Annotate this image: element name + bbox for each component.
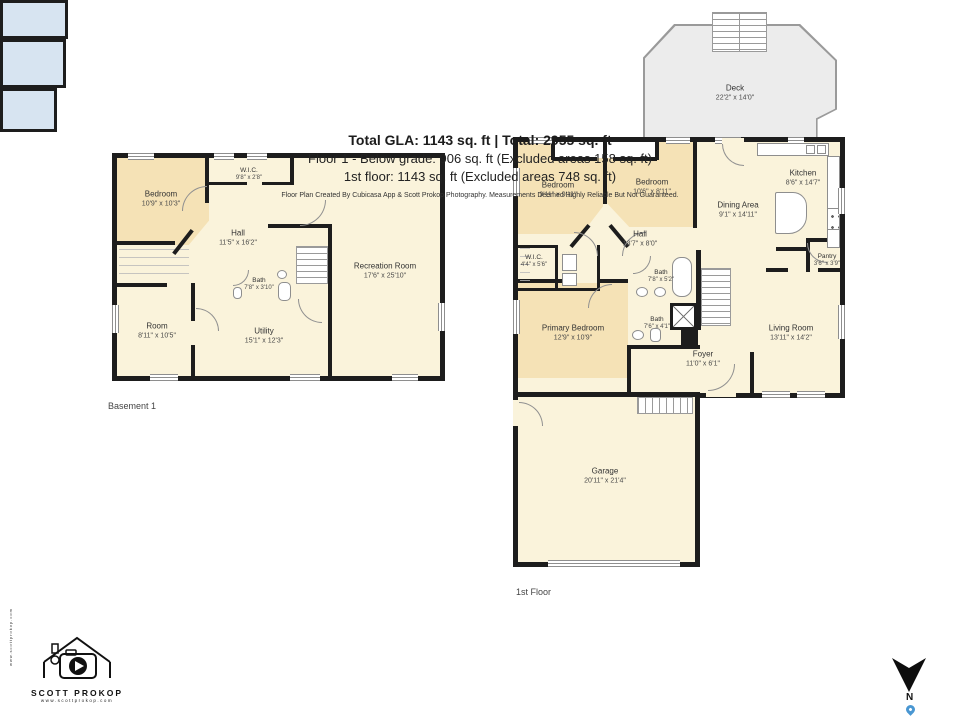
- garage-door-opening: [548, 560, 680, 567]
- logo-website-text: www.scottprokop.com: [22, 698, 132, 703]
- room-dims: 3'6" x 3'9": [814, 261, 840, 269]
- room-label-garage: Garage 20'11" x 21'4": [584, 466, 626, 485]
- ff-wall: [555, 245, 558, 291]
- window: [438, 303, 445, 331]
- garage-stairs: [637, 397, 693, 414]
- window: [112, 305, 119, 333]
- room-name: Foyer: [686, 349, 720, 359]
- basement-wall: [328, 224, 332, 377]
- window: [290, 374, 320, 381]
- sink-fixture: [654, 287, 666, 297]
- room-name: Garage: [584, 466, 626, 476]
- room-label-deck: Deck 22'2" x 14'0": [716, 83, 754, 102]
- room-dims: 17'6" x 25'10": [354, 272, 416, 281]
- room-name: Utility: [245, 326, 283, 336]
- basement-wall: [117, 283, 167, 287]
- ff-wall: [518, 288, 558, 291]
- basement-wall: [191, 283, 195, 321]
- photographer-logo: SCOTT PROKOP www.scottprokop.com www.sco…: [22, 630, 132, 703]
- window: [762, 391, 790, 398]
- room-dims: 13'11" x 14'2": [769, 334, 813, 343]
- room-label-basement-recreation: Recreation Room 17'6" x 25'10": [354, 261, 416, 280]
- room-label-ff-dining: Dining Area 9'1" x 14'11": [717, 200, 758, 219]
- ff-wall: [600, 279, 628, 283]
- room-dims: 20'11" x 21'4": [584, 477, 626, 486]
- ff-bath-upper-room: [0, 39, 66, 88]
- logo-name-text: SCOTT PROKOP: [22, 688, 132, 698]
- sink-fixture: [632, 330, 644, 340]
- window: [392, 374, 418, 381]
- tub-fixture: [278, 282, 291, 301]
- room-dims: 13'7" x 8'0": [623, 240, 658, 249]
- window: [838, 305, 845, 339]
- map-pin-icon: [904, 703, 917, 716]
- room-name: Living Room: [769, 323, 813, 333]
- room-name: Hall: [623, 229, 658, 239]
- room-name: Dining Area: [717, 200, 758, 210]
- room-label-ff-wic: W.I.C. 4'4" x 5'6": [521, 254, 547, 270]
- room-dims: 4'4" x 5'6": [521, 262, 547, 270]
- basement-wall: [191, 345, 195, 378]
- shower-fixture: [670, 303, 697, 330]
- basement-bath-room: [0, 0, 68, 39]
- closet-shelf: [562, 273, 577, 286]
- tub-fixture: [672, 257, 692, 297]
- closet-shelf: [562, 254, 577, 271]
- deck-stairs-rail: [739, 12, 740, 52]
- room-dims: 7'8" x 5'2": [648, 277, 674, 285]
- basement-wall: [117, 241, 175, 245]
- room-name: Bath: [648, 269, 674, 277]
- room-label-basement-room: Room 8'11" x 10'5": [138, 321, 176, 340]
- floor-plan-page: Bedroom 10'9" x 10'3" W.I.C. 9'8" x 2'8"…: [0, 0, 960, 720]
- floor1-area-line: Floor 1 - Below grade: 906 sq. ft (Exclu…: [0, 151, 960, 166]
- basement-shelf-area: [119, 249, 189, 281]
- house-camera-logo-icon: [22, 630, 132, 682]
- room-label-ff-bath-upper: Bath 7'8" x 5'2": [648, 269, 674, 285]
- basement-stairs: [296, 246, 328, 284]
- disclaimer-text: Floor Plan Created By Cubicasa App & Sco…: [0, 192, 960, 199]
- room-label-basement-utility: Utility 15'1" x 12'3": [245, 326, 283, 345]
- room-label-basement-hall: Hall 11'5" x 16'2": [219, 228, 257, 247]
- room-name: Hall: [219, 228, 257, 238]
- room-label-ff-pantry: Pantry 3'6" x 3'9": [814, 253, 840, 269]
- room-dims: 15'1" x 12'3": [245, 337, 283, 346]
- first-floor-label: 1st Floor: [516, 587, 551, 597]
- front-door-gap: [706, 390, 736, 397]
- room-label-ff-hall: Hall 13'7" x 8'0": [623, 229, 658, 248]
- room-label-ff-bath-lower: Bath 7'6" x 4'1": [644, 316, 670, 332]
- window: [797, 391, 825, 398]
- ff-chase-block: [681, 329, 698, 346]
- room-dims: 12'9" x 10'9": [542, 334, 604, 343]
- toilet-fixture: [233, 287, 242, 299]
- room-dims: 8'11" x 10'5": [138, 332, 176, 341]
- basement-floor-label: Basement 1: [108, 401, 156, 411]
- ff-stairs: [701, 268, 731, 326]
- total-gla-line: Total GLA: 1143 sq. ft | Total: 2955 sq.…: [0, 132, 960, 148]
- room-dims: 9'1" x 14'11": [717, 211, 758, 220]
- room-label-basement-bath: Bath 7'8" x 3'10": [244, 277, 274, 293]
- logo-vertical-text: www.scottprokop.com: [8, 608, 13, 666]
- room-name: Room: [138, 321, 176, 331]
- window: [513, 300, 520, 334]
- room-dims: 7'6" x 4'1": [644, 324, 670, 332]
- ff-wall: [627, 345, 631, 393]
- sink-fixture: [277, 270, 287, 279]
- ff-bath-lower-room: [0, 88, 57, 132]
- ff-wall: [766, 268, 788, 272]
- room-dims: 11'5" x 16'2": [219, 239, 257, 248]
- room-dims: 10'9" x 10'3": [142, 200, 180, 209]
- area-summary: Total GLA: 1143 sq. ft | Total: 2955 sq.…: [0, 132, 960, 199]
- window: [150, 374, 178, 381]
- room-dims: 11'0" x 6'1": [686, 360, 720, 369]
- room-name: Deck: [716, 83, 754, 93]
- room-name: W.I.C.: [521, 254, 547, 262]
- room-name: Pantry: [814, 253, 840, 261]
- north-label: N: [906, 692, 913, 703]
- sink-fixture: [636, 287, 648, 297]
- room-label-ff-living: Living Room 13'11" x 14'2": [769, 323, 813, 342]
- room-name: Recreation Room: [354, 261, 416, 271]
- first-floor-area-line: 1st floor: 1143 sq. ft (Excluded areas 7…: [0, 169, 960, 184]
- room-dims: 22'2" x 14'0": [716, 94, 754, 103]
- north-arrow-icon: [890, 656, 928, 694]
- room-label-ff-foyer: Foyer 11'0" x 6'1": [686, 349, 720, 368]
- room-dims: 7'8" x 3'10": [244, 285, 274, 293]
- ff-wall: [776, 247, 808, 251]
- room-label-ff-primary: Primary Bedroom 12'9" x 10'9": [542, 323, 604, 342]
- room-name: Primary Bedroom: [542, 323, 604, 333]
- room-name: Bath: [644, 316, 670, 324]
- ff-wall: [750, 352, 754, 394]
- room-name: Bath: [244, 277, 274, 285]
